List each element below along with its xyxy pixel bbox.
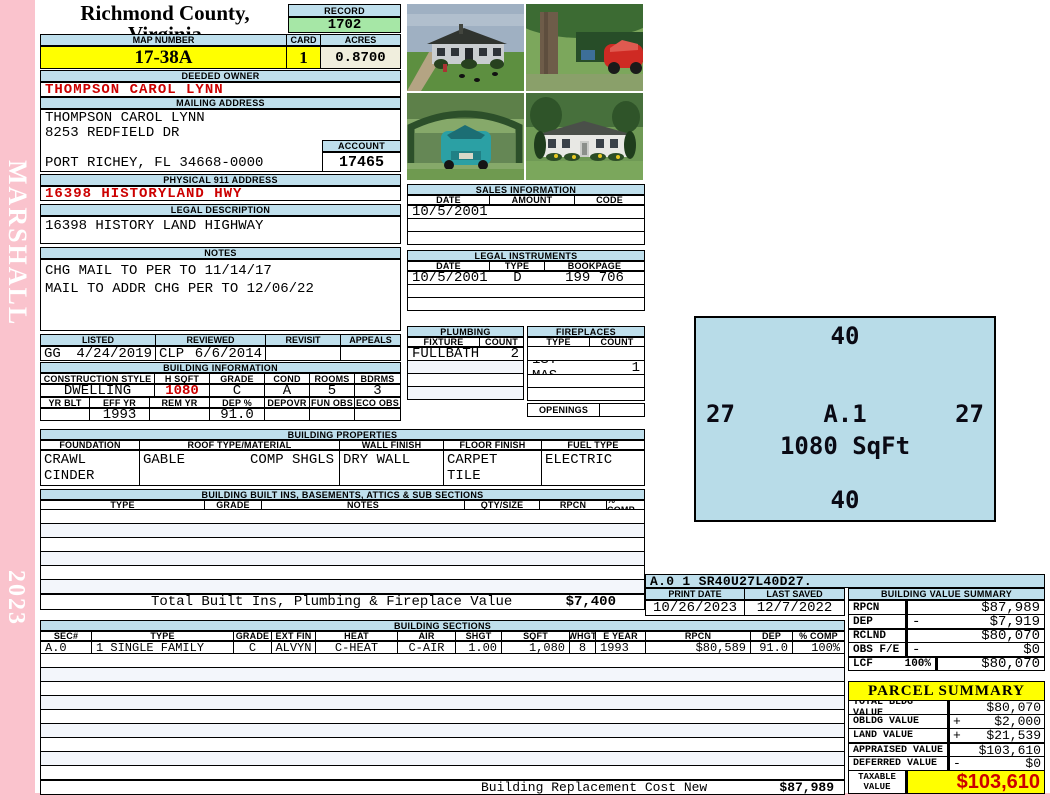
reviewed-date: 6/6/2014: [195, 346, 262, 361]
reviewed-by: CLP: [159, 346, 184, 361]
reviewed-value: CLP6/6/2014: [156, 346, 266, 361]
parcel-summary: PARCEL SUMMARY TOTAL BLDG VALUE $80,070 …: [848, 681, 1045, 794]
bs-h-dep: DEP: [751, 631, 793, 641]
effyr-value: 1993: [90, 408, 150, 421]
table-row: DEFERRED VALUE - $0: [848, 756, 1045, 771]
physical-address-label: PHYSICAL 911 ADDRESS: [40, 174, 401, 186]
rooms-label: ROOMS: [310, 373, 355, 384]
roof-label: ROOF TYPE/MATERIAL: [140, 440, 340, 450]
listed-by: GG: [44, 346, 61, 361]
building-information-title: BUILDING INFORMATION: [40, 362, 401, 373]
sketch-dim-top: 40: [696, 322, 994, 350]
taxable-value-row: TAXABLE VALUE $103,610: [848, 770, 1045, 794]
bvs-value-cell: - $0: [906, 642, 1045, 657]
building-sections-title: BUILDING SECTIONS: [40, 620, 845, 631]
table-row: [40, 696, 845, 710]
sales-rows: 10/5/2001: [407, 205, 645, 245]
card-value: 1: [287, 46, 321, 69]
table-row: [40, 710, 845, 724]
bdrms-value: 3: [355, 384, 401, 397]
wall-finish-label: WALL FINISH: [340, 440, 444, 450]
sale-code: [587, 205, 645, 219]
ecoobs-label: ECO OBS: [355, 397, 401, 408]
fireplaces-table: FIREPLACES TYPE COUNT 1ST MAS 1 OPENINGS: [527, 326, 645, 417]
bi-grade-label: GRADE: [205, 500, 262, 510]
print-value-row: 10/26/2023 12/7/2022: [645, 600, 845, 616]
revisit-value: [266, 346, 341, 361]
dep-pct-value: 91.0: [210, 408, 265, 421]
construction-style-value: DWELLING: [40, 384, 155, 397]
ps-value-cell: $80,070: [948, 700, 1045, 715]
built-ins-total-row: Total Built Ins, Plumbing & Fireplace Va…: [40, 594, 645, 610]
bs-extfin: ALVYN: [272, 641, 316, 654]
table-row: [407, 374, 524, 387]
table-row: [40, 738, 845, 752]
ps-value-cell: - $0: [948, 756, 1045, 771]
construction-style-label: CONSTRUCTION STYLE: [40, 373, 155, 384]
bs-h-air: AIR: [398, 631, 456, 641]
table-row: 10/5/2001: [407, 205, 645, 219]
bs-air: C-AIR: [398, 641, 456, 654]
table-row: [407, 298, 645, 311]
map-header-row: MAP NUMBER CARD ACRES: [40, 34, 401, 46]
map-number-value: 17-38A: [40, 46, 287, 69]
ps-value: $2,000: [994, 714, 1041, 729]
legal-instruments-title: LEGAL INSTRUMENTS: [407, 250, 645, 261]
bvs-value: $80,070: [936, 658, 1045, 671]
table-row: OBS F/E - $0: [848, 642, 1045, 657]
ps-value: $0: [1025, 756, 1041, 771]
bvs-op: -: [912, 642, 920, 657]
ps-label: TOTAL BLDG VALUE: [848, 700, 948, 715]
built-ins-empty-rows: [40, 510, 645, 594]
record-box: RECORD 1702: [288, 4, 401, 33]
plumbing-count-label: COUNT: [480, 337, 524, 347]
account-value: 17465: [322, 152, 401, 172]
bs-h-rpcn: RPCN: [646, 631, 751, 641]
vendor-watermark: MARSHALL: [2, 160, 32, 360]
notes-box: CHG MAIL TO PER TO 11/14/17 MAIL TO ADDR…: [40, 259, 401, 331]
bvs-label: DEP: [848, 614, 906, 629]
photo-house-front: [407, 4, 524, 91]
floor-finish-value: CARPET TILE: [444, 450, 542, 486]
note-line: MAIL TO ADDR CHG PER TO 12/06/22: [45, 280, 314, 298]
bs-type: 1 SINGLE FAMILY: [92, 641, 234, 654]
openings-value: [600, 403, 645, 417]
card-label: CARD: [287, 34, 321, 46]
effyr-label: EFF YR: [90, 397, 150, 408]
table-row: [407, 285, 645, 298]
table-row: RPCN $87,989: [848, 600, 1045, 615]
table-row: [407, 232, 645, 245]
taxable-value-amount: $103,610: [906, 770, 1045, 794]
table-row: [527, 347, 645, 361]
taxable-value-label: TAXABLE VALUE: [848, 770, 906, 794]
bs-h-eyear: E YEAR: [596, 631, 646, 641]
table-row: RCLND $80,070: [848, 628, 1045, 643]
table-row: [40, 654, 845, 668]
table-row: [40, 580, 645, 594]
remyr-value: [150, 408, 210, 421]
bvs-value: $0: [1023, 642, 1040, 657]
foundation-label: FOUNDATION: [40, 440, 140, 450]
fireplace-count: 1: [590, 361, 645, 375]
review-header-row: LISTED REVIEWED REVISIT APPEALS: [40, 334, 401, 346]
roof-type: GABLE: [143, 452, 185, 468]
revisit-label: REVISIT: [266, 334, 341, 346]
last-saved-value: 12/7/2022: [745, 600, 845, 616]
fireplace-type-label: TYPE: [527, 337, 590, 347]
table-row: FULLBATH 2: [407, 347, 524, 361]
yrblt-label: YR BLT: [40, 397, 90, 408]
table-row: [40, 524, 645, 538]
bs-h-extfin: EXT FIN: [272, 631, 316, 641]
print-date-label: PRINT DATE: [645, 588, 745, 600]
bs-h-heat: HEAT: [316, 631, 398, 641]
grade-label: GRADE: [210, 373, 265, 384]
photo-house-landscaped: [526, 93, 643, 180]
dep-pct-label: DEP %: [210, 397, 265, 408]
hsqft-label: H SQFT: [155, 373, 210, 384]
bvs-value: $87,989: [981, 600, 1040, 615]
fireplace-count-label: COUNT: [590, 337, 645, 347]
bs-grade: C: [234, 641, 272, 654]
table-row: [407, 361, 524, 374]
sketch-area-label: 1080 SqFt: [696, 432, 994, 460]
building-info-value-row1: DWELLING 1080 C A 5 3: [40, 384, 401, 397]
bvs-label: RPCN: [848, 600, 906, 615]
mailing-line: THOMPSON CAROL LYNN: [45, 111, 205, 126]
table-row: [407, 387, 524, 400]
ps-op: -: [953, 756, 961, 771]
sketch-section-label: A.1: [696, 400, 994, 428]
physical-address-value: 16398 HISTORYLAND HWY: [40, 186, 401, 201]
li-type-label: TYPE: [490, 261, 545, 271]
bvs-label: LCF: [853, 658, 873, 670]
record-value: 1702: [288, 17, 401, 33]
account-label: ACCOUNT: [322, 140, 401, 152]
foundation-line: CINDER BLOCK: [44, 468, 136, 486]
sale-date: 10/5/2001: [407, 205, 517, 219]
record-label: RECORD: [288, 4, 401, 17]
table-row: TOTAL BLDG VALUE $80,070: [848, 700, 1045, 715]
foundation-value: CRAWL CINDER BLOCK: [40, 450, 140, 486]
table-row: [407, 219, 645, 232]
building-sections-empty-rows: [40, 654, 845, 780]
built-ins-header-row: TYPE GRADE NOTES QTY/SIZE RPCN % COMP: [40, 500, 645, 510]
table-row: [40, 752, 845, 766]
grade-value: C: [210, 384, 265, 397]
bs-comp: 100%: [793, 641, 845, 654]
bs-dep: 91.0: [751, 641, 793, 654]
bs-h-sec: SEC#: [40, 631, 92, 641]
bs-sqft: 1,080: [502, 641, 570, 654]
bs-h-sqft: SQFT: [502, 631, 570, 641]
bs-heat: C-HEAT: [316, 641, 398, 654]
sketch-dim-bottom: 40: [696, 486, 994, 514]
ps-value: $21,539: [986, 728, 1041, 743]
plumbing-table: PLUMBING FIXTURE COUNT FULLBATH 2: [407, 326, 524, 400]
acres-value: 0.8700: [321, 46, 401, 69]
county-title-block: Richmond County, Virginia Commissioner o…: [42, 3, 288, 33]
bs-rpcn: $80,589: [646, 641, 751, 654]
sales-amount-label: AMOUNT: [490, 195, 575, 205]
mailing-line: 8253 REDFIELD DR: [45, 126, 179, 141]
ps-value-cell: + $21,539: [948, 728, 1045, 743]
li-type: D: [490, 271, 545, 285]
bs-h-grade: GRADE: [234, 631, 272, 641]
wall-finish-value: DRY WALL: [340, 450, 444, 486]
fixture-label: FIXTURE: [407, 337, 480, 347]
bvs-value: $7,919: [990, 614, 1040, 629]
sales-header-row: DATE AMOUNT CODE: [407, 195, 645, 205]
bs-h-whgt: WHGT: [570, 631, 596, 641]
table-row: [40, 538, 645, 552]
table-row: LCF 100% $80,070: [848, 656, 1045, 671]
bi-rpcn-label: RPCN: [540, 500, 607, 510]
ps-label: LAND VALUE: [848, 728, 948, 743]
floor-line: TILE: [447, 468, 481, 484]
sales-information-title: SALES INFORMATION: [407, 184, 645, 195]
legal-description-label: LEGAL DESCRIPTION: [40, 204, 401, 216]
floor-finish-label: FLOOR FINISH: [444, 440, 542, 450]
funobs-value: [310, 408, 355, 421]
sketch-vector-code: A.0 1 SR40U27L40D27.: [645, 574, 1045, 588]
listed-date: 4/24/2019: [76, 346, 152, 361]
reviewed-label: REVIEWED: [156, 334, 266, 346]
building-sections-header-row: SEC# TYPE GRADE EXT FIN HEAT AIR SHGT SQ…: [40, 631, 845, 641]
building-properties-title: BUILDING PROPERTIES: [40, 429, 645, 440]
bdrms-label: BDRMS: [355, 373, 401, 384]
replacement-cost-row: Building Replacement Cost New $87,989: [40, 780, 845, 795]
plumbing-title: PLUMBING: [407, 326, 524, 337]
review-value-row: GG4/24/2019 CLP6/6/2014: [40, 346, 401, 361]
built-ins-total-label: Total Built Ins, Plumbing & Fireplace Va…: [151, 594, 512, 610]
notes-label: NOTES: [40, 247, 401, 259]
rooms-value: 5: [310, 384, 355, 397]
building-info-header-row1: CONSTRUCTION STYLE H SQFT GRADE COND ROO…: [40, 373, 401, 384]
bvs-label: OBS F/E: [848, 642, 906, 657]
yrblt-value: [40, 408, 90, 421]
bs-h-comp: % COMP: [793, 631, 845, 641]
sales-code-label: CODE: [575, 195, 645, 205]
bi-type-label: TYPE: [40, 500, 205, 510]
building-properties-value-row: CRAWL CINDER BLOCK GABLE COMP SHGLS DRY …: [40, 450, 645, 486]
li-date: 10/5/2001: [407, 271, 490, 285]
table-row: [40, 552, 645, 566]
built-ins-title: BUILDING BUILT INS, BASEMENTS, ATTICS & …: [40, 489, 645, 500]
map-number-label: MAP NUMBER: [40, 34, 287, 46]
deeded-owner-label: DEEDED OWNER: [40, 70, 401, 82]
floor-line: CARPET: [447, 452, 497, 468]
legal-instruments-header-row: DATE TYPE BOOKPAGE: [407, 261, 645, 271]
table-row: [40, 566, 645, 580]
replacement-cost-value: $87,989: [779, 780, 834, 795]
building-info-header-row2: YR BLT EFF YR REM YR DEP % DEPOVR FUN OB…: [40, 397, 401, 408]
remyr-label: REM YR: [150, 397, 210, 408]
parcel-summary-title: PARCEL SUMMARY: [848, 681, 1045, 701]
print-date-value: 10/26/2023: [645, 600, 745, 616]
li-bookpage: 199 706: [545, 271, 645, 285]
fireplace-type: 1ST MAS: [527, 361, 590, 375]
ps-op: +: [953, 728, 961, 743]
bvs-value-cell: - $7,919: [906, 614, 1045, 629]
funobs-label: FUN OBS: [310, 397, 355, 408]
table-row: [40, 682, 845, 696]
deeded-owner-value: THOMPSON CAROL LYNN: [40, 82, 401, 97]
table-row: [40, 766, 845, 780]
bs-shgt: 1.00: [456, 641, 502, 654]
fuel-type-value: ELECTRIC: [542, 450, 645, 486]
note-line: CHG MAIL TO PER TO 11/14/17: [45, 262, 272, 280]
appeals-label: APPEALS: [341, 334, 401, 346]
photo-teal-car-carport: [407, 93, 524, 180]
fixture-value: FULLBATH: [407, 347, 480, 361]
map-value-row: 17-38A 1 0.8700: [40, 46, 401, 69]
sales-date-label: DATE: [407, 195, 490, 205]
ps-value: $80,070: [986, 700, 1041, 715]
table-row: APPRAISED VALUE $103,610: [848, 742, 1045, 757]
building-info-value-row2: 1993 91.0: [40, 408, 401, 421]
table-row: LAND VALUE + $21,539: [848, 728, 1045, 743]
table-row: 10/5/2001 D 199 706: [407, 271, 645, 285]
bi-comp-label: % COMP: [607, 500, 645, 510]
ps-label: DEFERRED VALUE: [848, 756, 948, 771]
building-value-summary: BUILDING VALUE SUMMARY RPCN $87,989 DEP …: [848, 588, 1045, 671]
building-value-summary-title: BUILDING VALUE SUMMARY: [848, 588, 1045, 600]
ps-label: OBLDG VALUE: [848, 714, 948, 729]
ps-value-cell: + $2,000: [948, 714, 1045, 729]
taxable-label-line: TAXABLE: [858, 772, 896, 782]
bi-qty-label: QTY/SIZE: [465, 500, 540, 510]
cond-value: A: [265, 384, 310, 397]
listed-value: GG4/24/2019: [40, 346, 156, 361]
property-record-card: Richmond County, Virginia Commissioner o…: [35, 0, 1050, 793]
hsqft-value: 1080: [155, 384, 210, 397]
li-date-label: DATE: [407, 261, 490, 271]
photo-grid: [407, 4, 645, 182]
table-row: DEP - $7,919: [848, 614, 1045, 629]
bvs-value-cell: $87,989: [906, 600, 1045, 615]
bs-h-type: TYPE: [92, 631, 234, 641]
table-row: 1ST MAS 1: [527, 361, 645, 375]
bvs-op: -: [912, 614, 920, 629]
legal-instruments-rows: 10/5/2001 D 199 706: [407, 271, 645, 311]
table-row: [40, 510, 645, 524]
roof-value: GABLE COMP SHGLS: [140, 450, 340, 486]
fixture-count: 2: [480, 347, 524, 361]
ps-op: +: [953, 714, 961, 729]
building-sketch: 40 27 27 A.1 1080 SqFt 40: [694, 316, 996, 522]
ecoobs-value: [355, 408, 401, 421]
photo-carport-red-car: [526, 4, 643, 91]
appeals-value: [341, 346, 401, 361]
bs-sec: A.0: [40, 641, 92, 654]
openings-label: OPENINGS: [527, 403, 600, 417]
depovr-value: [265, 408, 310, 421]
table-row: OBLDG VALUE + $2,000: [848, 714, 1045, 729]
table-row: [40, 724, 845, 738]
last-saved-label: LAST SAVED: [745, 588, 845, 600]
roof-material: COMP SHGLS: [250, 452, 334, 468]
sale-amount: [517, 205, 587, 219]
cond-label: COND: [265, 373, 310, 384]
fuel-type-label: FUEL TYPE: [542, 440, 645, 450]
acres-label: ACRES: [321, 34, 401, 46]
table-row: [527, 375, 645, 388]
bvs-label-cell: LCF 100%: [848, 658, 936, 671]
bs-whgt: 8: [570, 641, 596, 654]
bs-h-shgt: SHGT: [456, 631, 502, 641]
building-properties-header-row: FOUNDATION ROOF TYPE/MATERIAL WALL FINIS…: [40, 440, 645, 450]
replacement-cost-label: Building Replacement Cost New: [481, 780, 707, 795]
mailing-address-label: MAILING ADDRESS: [40, 97, 401, 109]
year-watermark: 2023: [2, 570, 29, 650]
table-row: [40, 668, 845, 682]
built-ins-total-value: $7,400: [566, 594, 616, 610]
building-section-data-row: A.0 1 SINGLE FAMILY C ALVYN C-HEAT C-AIR…: [40, 641, 845, 654]
fireplaces-title: FIREPLACES: [527, 326, 645, 337]
bvs-lcf-pct: 100%: [905, 658, 931, 670]
li-bookpage-label: BOOKPAGE: [545, 261, 645, 271]
legal-description-value: 16398 HISTORY LAND HIGHWAY: [40, 216, 401, 244]
print-header-row: PRINT DATE LAST SAVED: [645, 588, 845, 600]
foundation-line: CRAWL: [44, 452, 86, 468]
taxable-label-line: VALUE: [863, 782, 890, 792]
mailing-line: PORT RICHEY, FL 34668-0000: [45, 156, 263, 171]
depovr-label: DEPOVR: [265, 397, 310, 408]
bi-notes-label: NOTES: [262, 500, 465, 510]
bs-eyear: 1993: [596, 641, 646, 654]
table-row: [527, 388, 645, 401]
listed-label: LISTED: [40, 334, 156, 346]
